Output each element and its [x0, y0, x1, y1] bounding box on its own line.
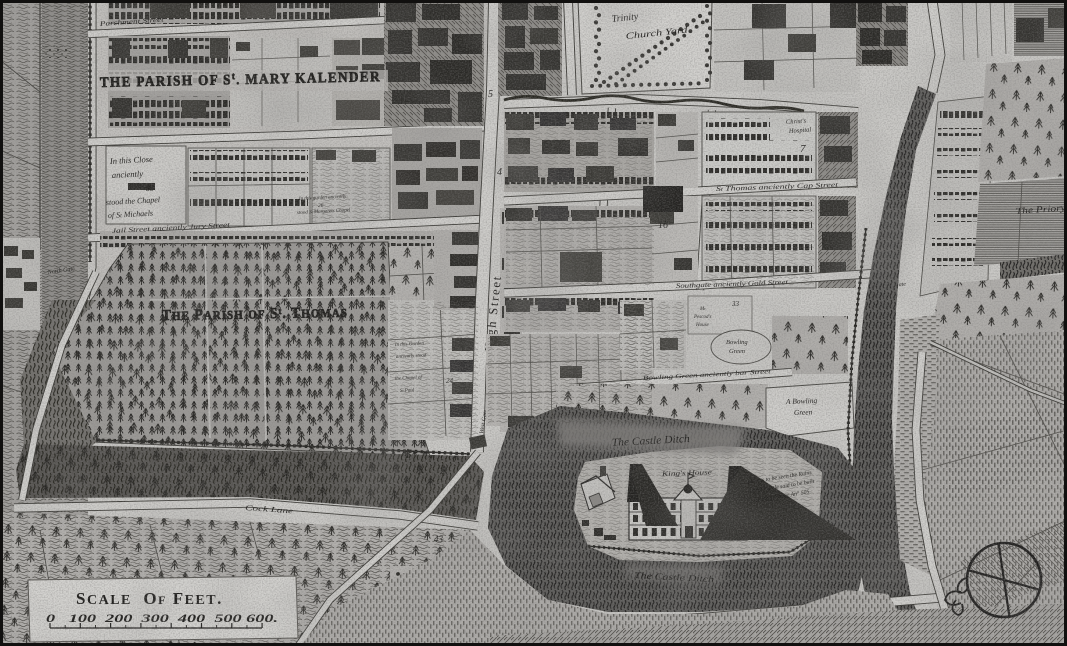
svg-text:85: 85 [146, 184, 154, 193]
svg-text:0 100 200 300 400 500 60: 0 100 200 300 400 500 600. [46, 611, 278, 625]
svg-text:5: 5 [488, 89, 493, 100]
svg-text:anciently: anciently [112, 168, 144, 180]
svg-text:26: 26 [318, 203, 324, 209]
svg-text:House: House [695, 323, 710, 328]
svg-text:16: 16 [658, 220, 668, 231]
svg-text:4: 4 [497, 167, 502, 178]
svg-text:43: 43 [434, 534, 444, 544]
svg-text:A Bowling: A Bowling [785, 396, 818, 406]
svg-text:Pescod's: Pescod's [693, 315, 712, 320]
svg-text:Bowling: Bowling [726, 339, 748, 346]
svg-text:Christ's: Christ's [786, 118, 807, 126]
svg-text:33: 33 [731, 300, 740, 308]
svg-text:Green: Green [729, 348, 745, 355]
svg-text:Green: Green [794, 407, 813, 417]
svg-text:7: 7 [800, 143, 806, 155]
